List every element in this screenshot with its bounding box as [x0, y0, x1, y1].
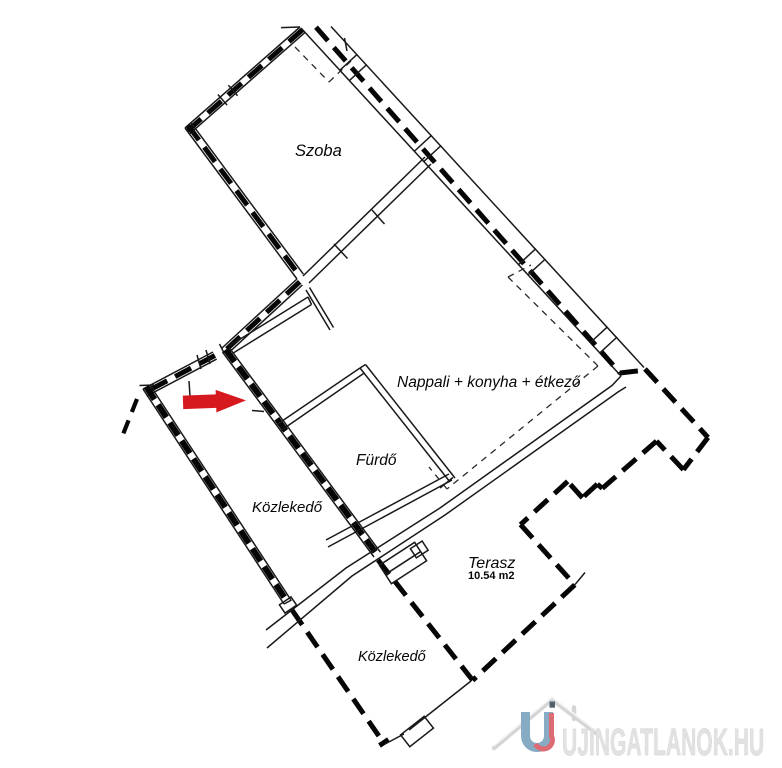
svg-text:Fürdő: Fürdő — [356, 452, 397, 469]
svg-text:UJINGATLANOK.HU: UJINGATLANOK.HU — [562, 720, 764, 763]
svg-text:Közlekedő: Közlekedő — [358, 649, 427, 665]
svg-text:Nappali + konyha + étkező: Nappali + konyha + étkező — [397, 374, 581, 391]
svg-text:Szoba: Szoba — [295, 142, 342, 160]
svg-text:Közlekedő: Közlekedő — [252, 499, 323, 516]
svg-text:10.54 m2: 10.54 m2 — [468, 570, 514, 582]
